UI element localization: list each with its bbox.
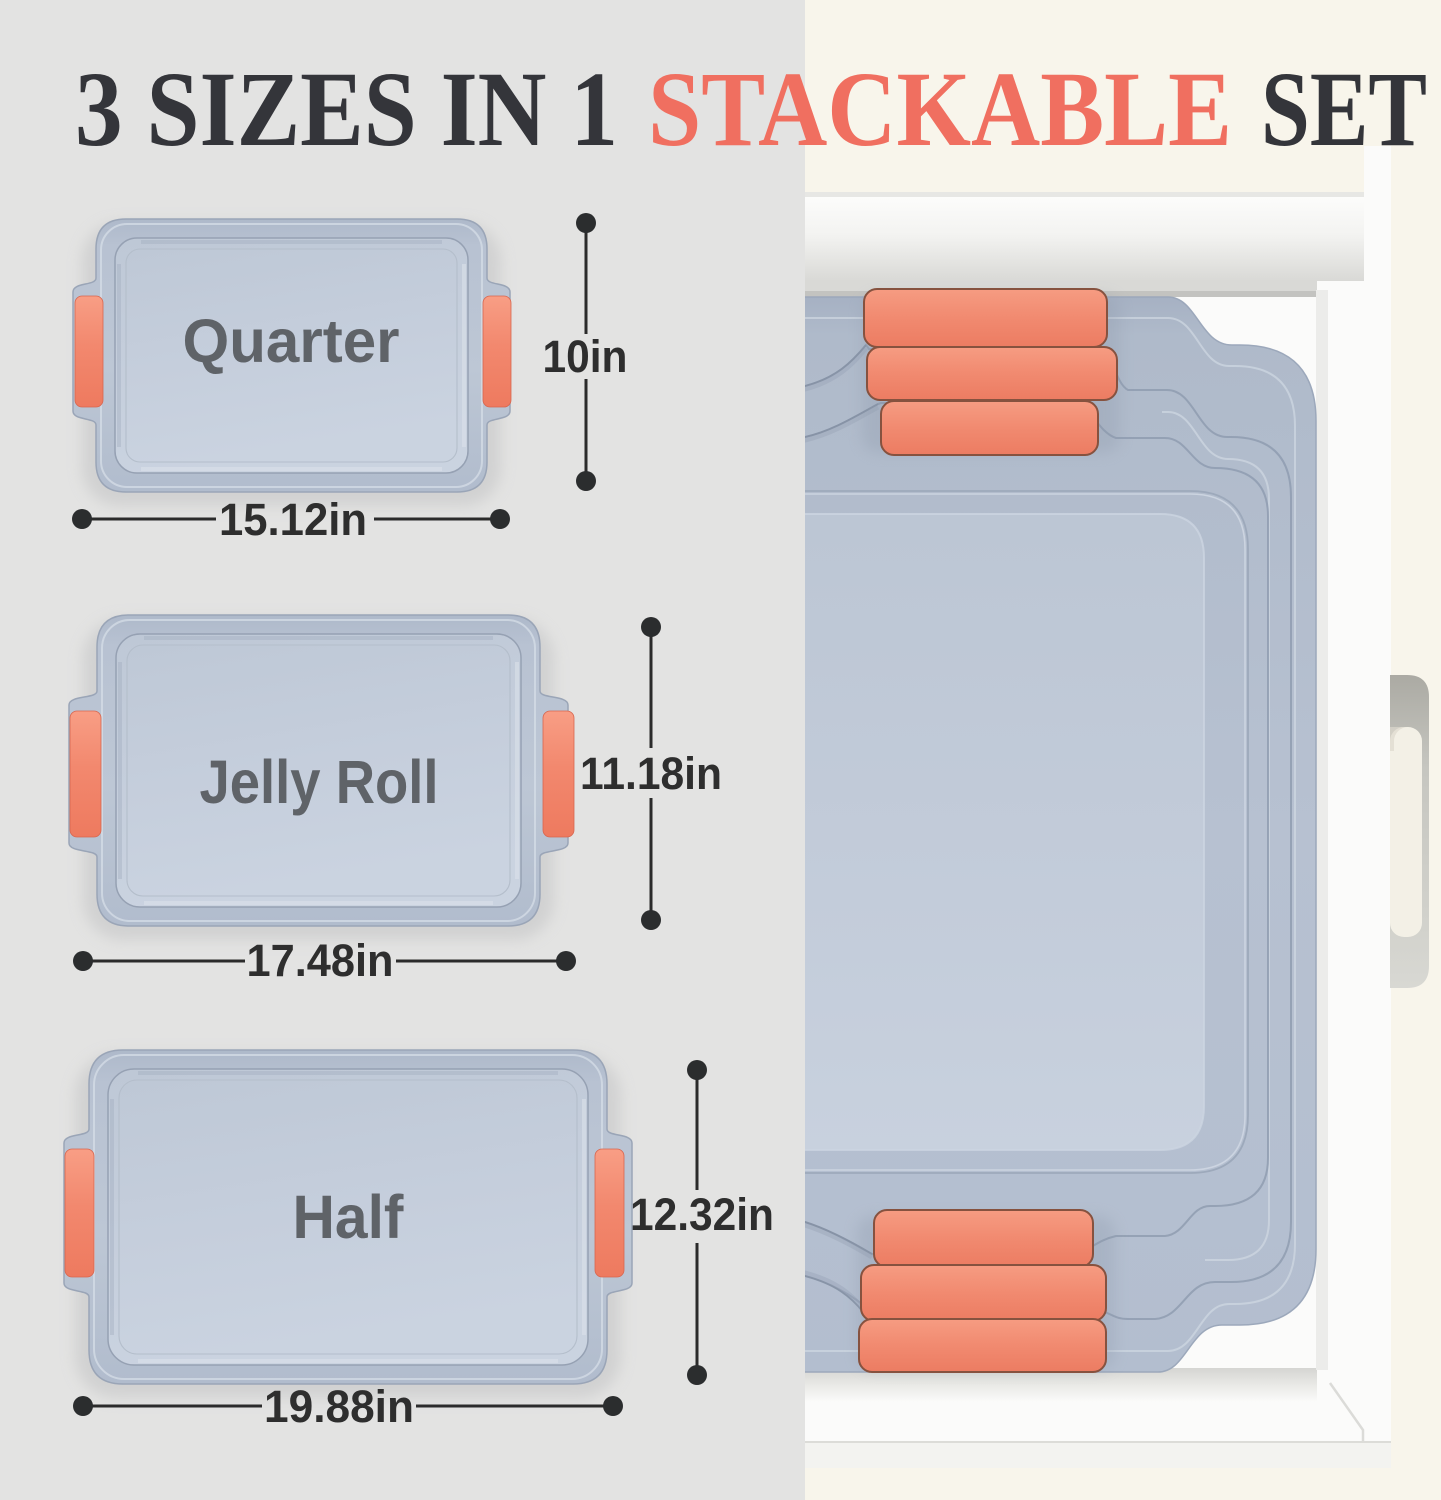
svg-text:STACKABLE: STACKABLE <box>648 51 1232 169</box>
svg-text:Quarter: Quarter <box>183 307 400 375</box>
svg-text:Half: Half <box>293 1183 405 1251</box>
svg-text:10in: 10in <box>543 331 628 382</box>
svg-text:Jelly Roll: Jelly Roll <box>200 748 439 816</box>
svg-text:19.88in: 19.88in <box>264 1381 414 1432</box>
svg-text:15.12in: 15.12in <box>219 494 367 545</box>
svg-text:11.18in: 11.18in <box>580 748 722 799</box>
svg-text:17.48in: 17.48in <box>247 935 394 986</box>
svg-text:SET: SET <box>1261 51 1427 169</box>
svg-text:12.32in: 12.32in <box>630 1189 774 1240</box>
svg-text:3 SIZES IN 1: 3 SIZES IN 1 <box>75 51 618 169</box>
